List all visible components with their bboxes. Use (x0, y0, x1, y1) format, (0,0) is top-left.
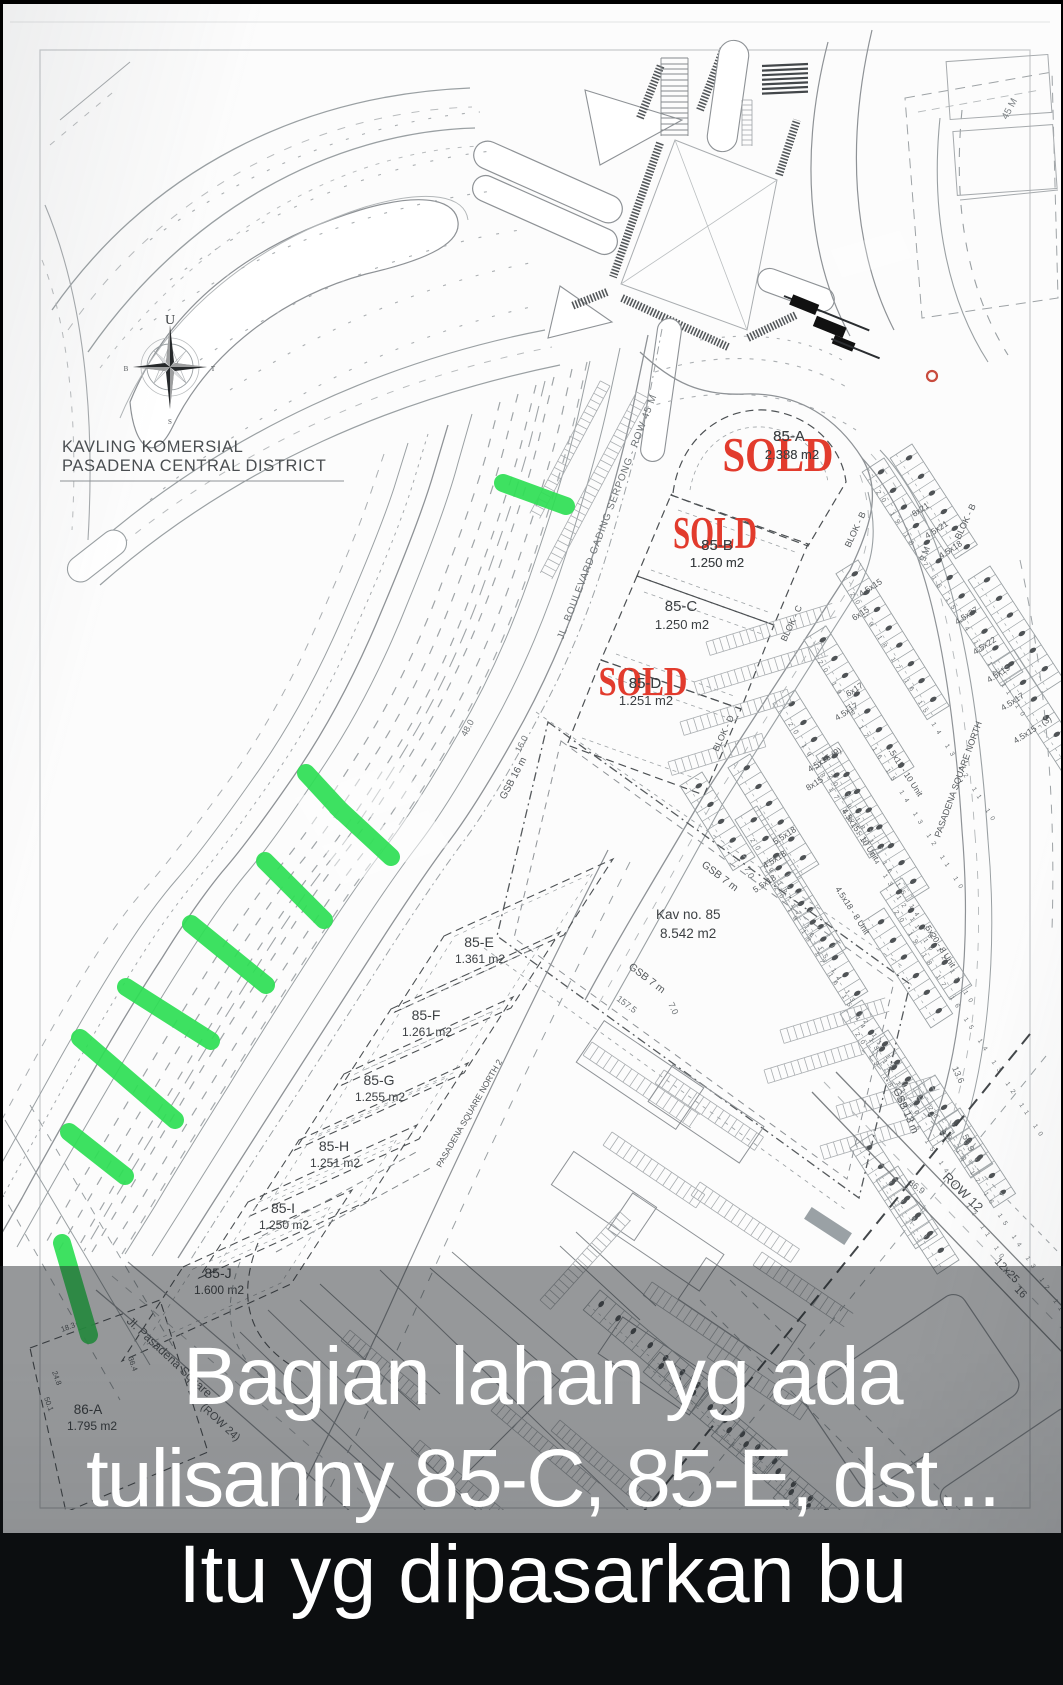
svg-text:85-E: 85-E (464, 934, 494, 950)
svg-text:Kav no. 85: Kav no. 85 (656, 907, 721, 922)
svg-text:85-F: 85-F (412, 1007, 441, 1023)
svg-text:U: U (165, 313, 175, 328)
svg-text:GSB 7 m: GSB 7 m (699, 859, 740, 894)
svg-text:85-G: 85-G (363, 1072, 394, 1088)
svg-text:45 M: 45 M (1000, 97, 1020, 122)
svg-text:8.542 m2: 8.542 m2 (660, 926, 716, 941)
svg-text:BLOK - D: BLOK - D (711, 713, 737, 753)
svg-text:4.5x18: 4.5x18 (937, 538, 964, 560)
svg-text:1.250 m2: 1.250 m2 (690, 555, 744, 570)
svg-text:1.261 m2: 1.261 m2 (402, 1025, 452, 1039)
svg-text:2.388 m2: 2.388 m2 (765, 447, 819, 462)
svg-text:T: T (211, 365, 216, 373)
svg-text:85-D: 85-D (629, 675, 662, 692)
svg-text:1.361 m2: 1.361 m2 (455, 952, 505, 966)
svg-text:GSB 16 m: GSB 16 m (498, 756, 529, 802)
svg-text:1.250 m2: 1.250 m2 (259, 1218, 309, 1232)
svg-text:7.0: 7.0 (666, 1001, 680, 1017)
svg-text:1.250 m2: 1.250 m2 (655, 617, 709, 632)
svg-text:13.6: 13.6 (950, 1065, 966, 1085)
svg-text:S: S (168, 418, 172, 426)
svg-text:PASADENA CENTRAL DISTRICT: PASADENA CENTRAL DISTRICT (62, 457, 326, 475)
svg-text:85-H: 85-H (319, 1138, 349, 1154)
svg-text:48.0: 48.0 (459, 718, 476, 738)
svg-text:7.0: 7.0 (742, 865, 756, 881)
svg-text:GSB 7 m: GSB 7 m (626, 961, 667, 996)
svg-text:1.255 m2: 1.255 m2 (355, 1090, 405, 1104)
svg-text:20 19 18 17 16 15 14 13 12 11: 20 19 18 17 16 15 14 13 12 11 10 (853, 1031, 1008, 1264)
svg-text:20 19 18 17 16 15 14 13 12 11: 20 19 18 17 16 15 14 13 12 11 10 (816, 659, 967, 894)
svg-text:4.5x18 - 8 Unit: 4.5x18 - 8 Unit (833, 884, 872, 936)
svg-text:BLOK - B: BLOK - B (953, 502, 978, 541)
svg-text:9 M: 9 M (917, 545, 932, 563)
svg-text:85-C: 85-C (665, 598, 698, 615)
svg-text:16.0: 16.0 (513, 734, 530, 754)
svg-text:4.5x21: 4.5x21 (923, 518, 950, 540)
svg-text:B: B (124, 365, 129, 373)
svg-text:157.5: 157.5 (615, 994, 639, 1016)
svg-text:4.5x18: 4.5x18 (761, 848, 788, 870)
svg-text:BLOK - C: BLOK - C (779, 603, 805, 643)
svg-text:BLOK - B: BLOK - B (843, 510, 868, 549)
svg-text:85-A: 85-A (773, 428, 805, 445)
svg-text:1.251 m2: 1.251 m2 (310, 1156, 360, 1170)
svg-text:JL. BOULEVARD GADING SERPONG -: JL. BOULEVARD GADING SERPONG - ROW 45 M (556, 393, 660, 641)
svg-text:KAVLING KOMERSIAL: KAVLING KOMERSIAL (62, 438, 243, 456)
svg-text:85-I: 85-I (271, 1200, 295, 1216)
svg-text:85-B: 85-B (701, 537, 733, 554)
